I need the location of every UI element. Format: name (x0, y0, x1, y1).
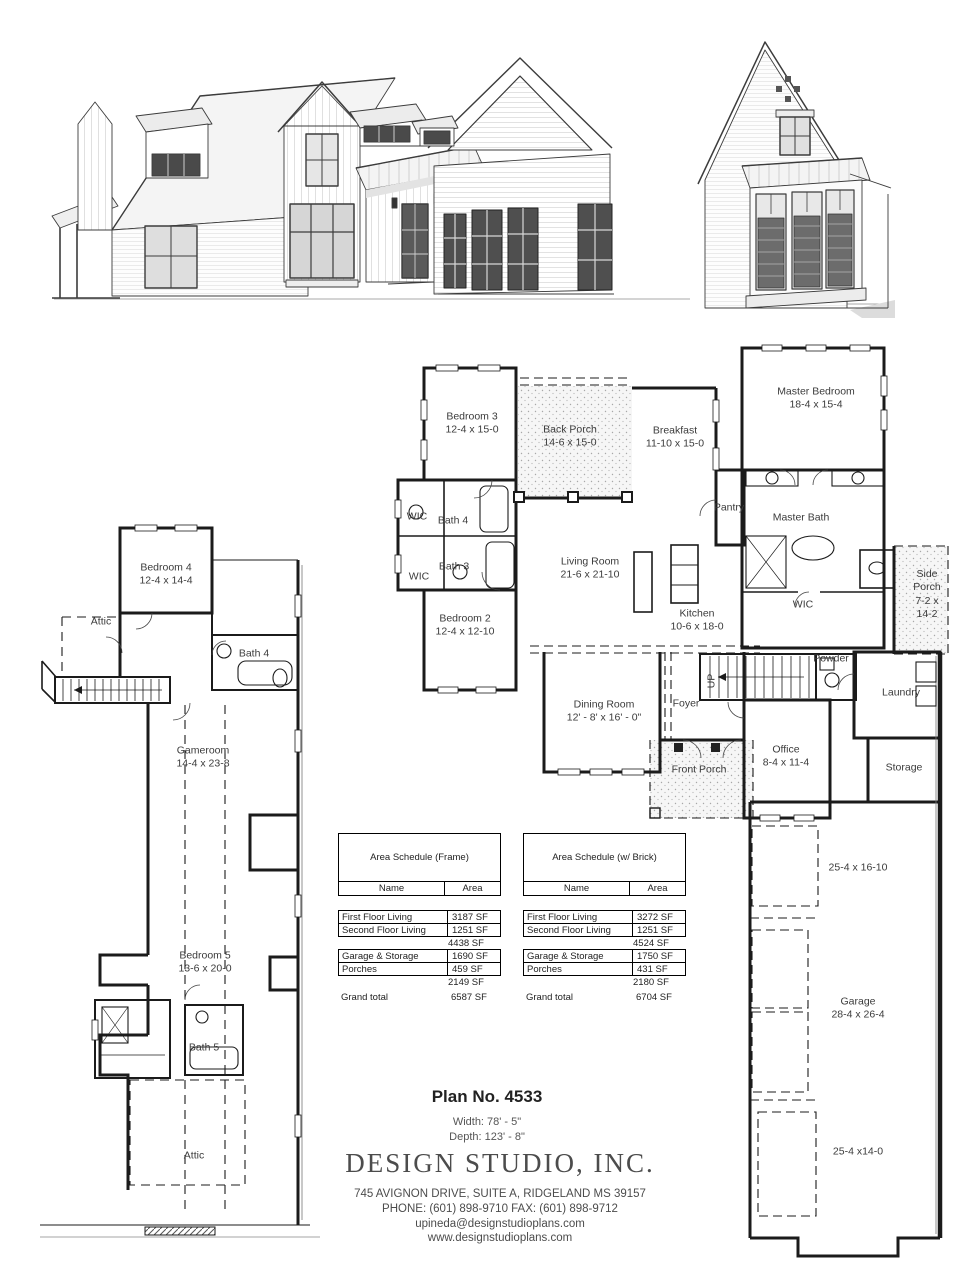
table-title: Area Schedule (Frame) (339, 834, 500, 881)
table-row-porches: Porches431 SF (523, 962, 686, 976)
room-label-bedroom-3: Bedroom 312-4 x 15-0 (445, 411, 498, 438)
room-label-bedroom-4: Bedroom 412-4 x 14-4 (139, 562, 192, 589)
col-header-name: Name (339, 882, 445, 895)
room-label-wic: WIC (793, 598, 813, 611)
room-label-bedroom-5: Bedroom 513-6 x 20-0 (178, 950, 231, 977)
room-label-wic: WIC (407, 510, 427, 523)
second-floor-plan (40, 515, 320, 1260)
room-label-living-room: Living Room21-6 x 21-10 (561, 556, 620, 583)
room-label-master-bath: Master Bath (773, 511, 830, 524)
area-schedule-area-schedule-w-brick: Area Schedule (w/ Brick)NameAreaFirst Fl… (523, 833, 686, 1004)
room-label-up: UP (705, 674, 718, 689)
table-row-garage-storage: Garage & Storage1750 SF (523, 949, 686, 963)
room-label-dining-room: Dining Room12' - 8' x 16' - 0" (567, 699, 642, 726)
room-label-attic: Attic (184, 1149, 204, 1162)
table-row-first-floor-living: First Floor Living3187 SF (338, 910, 501, 924)
col-header-area: Area (630, 882, 685, 895)
area-schedule-area-schedule-frame: Area Schedule (Frame)NameAreaFirst Floor… (338, 833, 501, 1004)
room-label-back-porch: Back Porch14-6 x 15-0 (543, 424, 597, 451)
room-label-bath-4: Bath 4 (239, 647, 269, 660)
room-label-bath-3: Bath 3 (439, 560, 469, 573)
plan-sheet: Bedroom 312-4 x 15-0Back Porch14-6 x 15-… (0, 0, 980, 1268)
table-row-second-floor-living: Second Floor Living1251 SF (338, 923, 501, 937)
table-title: Area Schedule (w/ Brick) (524, 834, 685, 881)
room-label-office: Office8-4 x 11-4 (763, 744, 810, 771)
table-row-porches: Porches459 SF (338, 962, 501, 976)
second-floor-walls (40, 525, 320, 1237)
house-elevation-rendering (50, 18, 895, 318)
room-label-bath-5: Bath 5 (189, 1041, 219, 1054)
room-label-bedroom-2: Bedroom 212-4 x 12-10 (436, 613, 495, 640)
room-label-25-4-x-16-10: 25-4 x 16-10 (829, 861, 888, 874)
company-address: 745 AVIGNON DRIVE, SUITE A, RIDGELAND MS… (290, 1188, 710, 1200)
table-row-garage-storage: Garage & Storage1690 SF (338, 949, 501, 963)
elevation-linework (52, 42, 895, 318)
company-email: upineda@designstudioplans.com (290, 1218, 710, 1230)
table-row-second-floor-living: Second Floor Living1251 SF (523, 923, 686, 937)
room-label-25-4-x14-0: 25-4 x14-0 (833, 1145, 883, 1158)
room-label-bath-4: Bath 4 (438, 514, 468, 527)
room-label-storage: Storage (886, 761, 923, 774)
plan-number: Plan No. 4533 (327, 1087, 647, 1107)
room-label-powder: Powder (813, 652, 849, 665)
col-header-name: Name (524, 882, 630, 895)
company-website: www.designstudioplans.com (290, 1232, 710, 1244)
col-header-area: Area (445, 882, 500, 895)
table-subtotal: 2180 SF (523, 976, 686, 989)
table-grand-total: Grand total6704 SF (523, 990, 686, 1004)
room-label-kitchen: Kitchen10-6 x 18-0 (670, 608, 723, 635)
table-subtotal: 2149 SF (338, 976, 501, 989)
room-label-master-bedroom: Master Bedroom18-4 x 15-4 (777, 386, 855, 413)
plan-width: Width: 78' - 5" (327, 1116, 647, 1128)
room-label-attic: Attic (91, 615, 111, 628)
room-label-breakfast: Breakfast11-10 x 15-0 (646, 425, 704, 452)
company-phone-fax: PHONE: (601) 898-9710 FAX: (601) 898-971… (290, 1203, 710, 1215)
room-label-pantry: Pantry (714, 501, 744, 514)
plan-depth: Depth: 123' - 8" (327, 1131, 647, 1143)
company-name: DESIGN STUDIO, INC. (290, 1148, 710, 1179)
room-label-foyer: Foyer (673, 697, 700, 710)
room-label-front-porch: Front Porch (672, 763, 727, 776)
room-label-laundry: Laundry (882, 686, 920, 699)
table-row-first-floor-living: First Floor Living3272 SF (523, 910, 686, 924)
table-grand-total: Grand total6587 SF (338, 990, 501, 1004)
room-label-gameroom: Gameroom14-4 x 23-8 (176, 745, 229, 772)
room-label-wic: WIC (409, 570, 429, 583)
room-label-garage: Garage28-4 x 26-4 (831, 996, 884, 1023)
room-label-side: SidePorch7-2 x14-2 (913, 568, 940, 622)
